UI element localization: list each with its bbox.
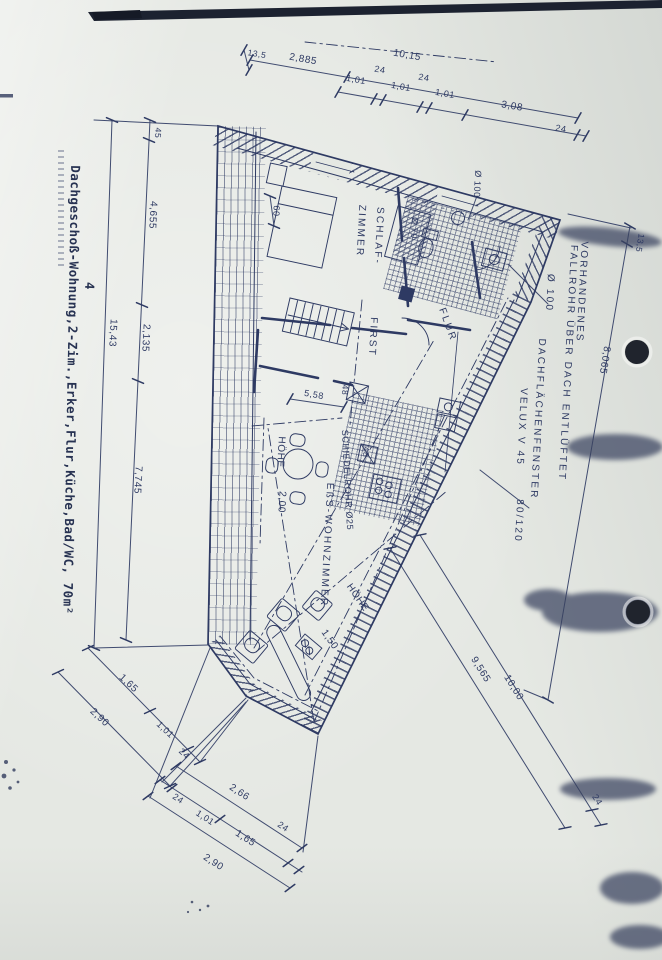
ann-dia70: Ø 70 (409, 217, 419, 239)
dim-left-1543: 15,43 (106, 319, 117, 348)
dim-left-45: 45 (153, 127, 162, 138)
scanned-floorplan-page: Dachgeschoß-Wohnung,2-Zim.,Erker,Flur,Kü… (0, 0, 662, 960)
room-schlafzimmer-line1: SCHLAF- (371, 207, 384, 266)
dim-top-24b: 24 (418, 73, 431, 84)
height-2-value: 2,00 (275, 491, 286, 513)
bed (251, 163, 341, 268)
ann-dia100-top: Ø 100 (472, 170, 482, 198)
ann-fenster-size: 80/120 (512, 499, 524, 543)
dim-left-4655: 4,655 (146, 201, 157, 230)
ann-bed-60: 60 (271, 205, 281, 217)
ann-fallrohr-dia: Ø 100 (543, 274, 555, 313)
ink-speckles (0, 94, 209, 913)
dim-left-2135: 2,135 (139, 324, 150, 353)
ann-48b: 48 (361, 446, 370, 457)
dim-left-7745: 7,745 (131, 466, 142, 495)
interior-walls (254, 188, 480, 392)
room-schlafzimmer-line2: ZIMMER (354, 204, 367, 257)
dim-top-24c: 24 (555, 124, 568, 135)
bath-fixture (399, 286, 415, 302)
dashed-lines (220, 42, 508, 722)
stove (369, 474, 401, 503)
margin-mark: 4 (83, 282, 96, 291)
punch-holes (623, 338, 652, 626)
ink-smudges (524, 223, 662, 949)
dim-right-13-5: 13,5 (634, 233, 645, 253)
stairs (282, 298, 354, 346)
sink (452, 212, 465, 225)
kitchen-sink (434, 398, 461, 432)
ann-48a: 48 (340, 384, 349, 395)
ridge-first: FIRST (366, 317, 378, 357)
dim-top-24a: 24 (374, 65, 387, 76)
height-2-label: HÖHE (274, 436, 286, 468)
top-edge (88, 0, 662, 21)
dia70-box (385, 206, 431, 265)
